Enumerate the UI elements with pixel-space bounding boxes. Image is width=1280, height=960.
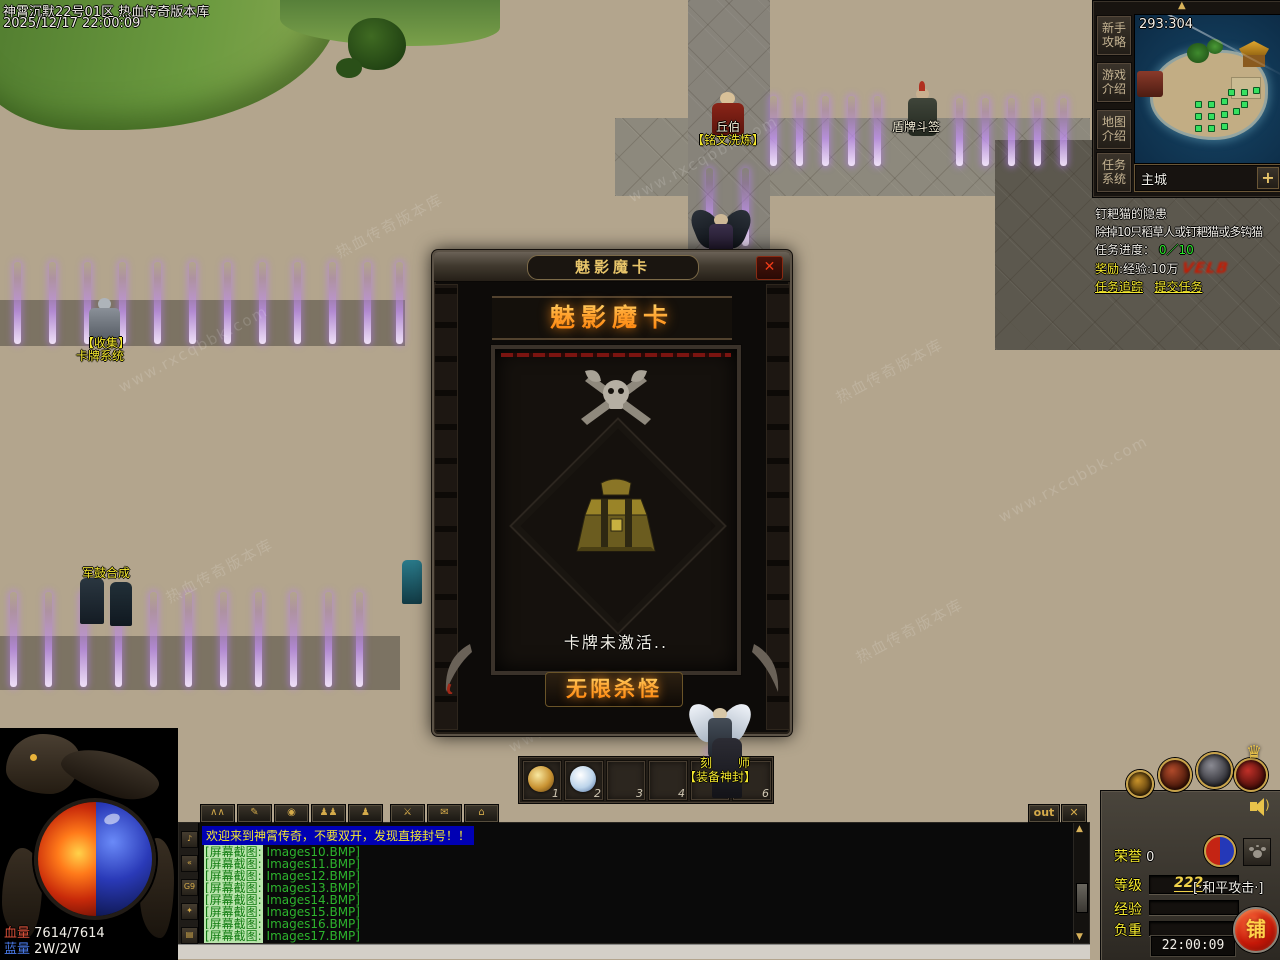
minimap-player-dot xyxy=(1233,108,1240,115)
honor-value: 0 xyxy=(1146,850,1154,865)
watermark-text: 热血传奇版本库 xyxy=(332,188,447,262)
quest-track-link[interactable]: 任务追踪 xyxy=(1095,280,1143,294)
chat-input[interactable] xyxy=(178,944,1090,959)
chest-icon xyxy=(571,477,661,561)
quest-submit-link[interactable]: 提交任务 xyxy=(1154,280,1202,294)
weight-label: 负重 xyxy=(1114,920,1142,940)
minimap[interactable]: 293:304 xyxy=(1134,14,1280,164)
card-status-text: 卡牌未激活.. xyxy=(495,629,737,653)
quest-title: 钉耙猫的隐患 xyxy=(1095,205,1280,223)
minimap-player-dot xyxy=(1195,101,1202,108)
scroll-item-icon xyxy=(528,766,554,792)
exp-label: 经验 xyxy=(1114,899,1142,919)
dialog-header-text: 魅影魔卡 xyxy=(550,303,674,332)
menu-character-icon[interactable] xyxy=(1158,758,1192,792)
quest-reward-label: 奖励 xyxy=(1095,262,1119,276)
watermark-text: www.rxcqbbk.com xyxy=(996,432,1152,526)
minimap-location-bar: 主城 + xyxy=(1134,164,1280,192)
duel-icon[interactable]: ⚔ xyxy=(390,804,425,823)
magic-card: 卡牌未激活.. xyxy=(491,345,741,675)
exp-bar xyxy=(1149,900,1239,915)
minimap-player-dot xyxy=(1208,113,1215,120)
watermark-text: 热血传奇版本库 xyxy=(832,333,947,407)
blade-decoration-left xyxy=(440,644,474,694)
scroll-down-icon[interactable]: ▼ xyxy=(1076,932,1083,942)
guild-icon[interactable]: ♟ xyxy=(348,804,383,823)
hp-mp-orb xyxy=(34,798,156,920)
pillar-base-row-2 xyxy=(0,636,400,690)
chat-out-button[interactable]: out xyxy=(1028,804,1060,823)
npc-drum-sprite-1[interactable] xyxy=(80,578,104,624)
location-name: 主城 xyxy=(1141,169,1167,188)
minimize-chat-icon[interactable]: ∧∧ xyxy=(200,804,235,823)
chat-line: [屏幕截图: Images17.BMP] xyxy=(204,927,360,944)
slot-number: 6 xyxy=(762,787,769,800)
npc-shield-name: 盾牌斗签 xyxy=(892,118,940,135)
npc-collect-name: 卡牌系统 xyxy=(76,347,124,364)
screenshot-file: Images17.BMP] xyxy=(263,929,360,943)
quest-tracker: 钉耙猫的隐患 除掉10只稻草人或钉耙猫或多钩猫 任务进度： 0／10 奖励:经验… xyxy=(1095,205,1280,296)
npc-seal-line2: 【装备神封】 xyxy=(684,768,756,785)
infinite-kill-button[interactable]: 无限杀怪 xyxy=(545,672,683,707)
minimap-player-dot xyxy=(1241,101,1248,108)
quest-progress-value: 0／10 xyxy=(1159,243,1194,257)
slot-number: 2 xyxy=(594,787,601,800)
dragon-eye xyxy=(30,754,37,761)
dialog-title: 魅影魔卡 xyxy=(527,255,699,280)
level-label: 等级 xyxy=(1114,875,1142,895)
speaker-icon[interactable]: ) xyxy=(1248,796,1274,818)
server-datetime: 2025/12/17 22:00:09 xyxy=(3,16,140,31)
dialog-titlebar: 魅影魔卡 ✕ xyxy=(434,252,790,282)
minimap-player-dot xyxy=(1221,123,1228,130)
trophy-icon[interactable]: ♛ xyxy=(1246,742,1270,766)
minimap-tree-1 xyxy=(1187,43,1209,63)
scroll-up-icon[interactable]: ▲ xyxy=(1076,824,1083,834)
weight-bar xyxy=(1149,921,1239,936)
stall-button[interactable]: 铺 xyxy=(1233,907,1279,953)
bush-small xyxy=(336,58,362,78)
phantom-card-dialog: 魅影魔卡 ✕ 魅影魔卡 xyxy=(432,250,792,736)
minimap-player-dot xyxy=(1241,89,1248,96)
orb-item-icon xyxy=(570,766,596,792)
minimap-collapse-icon[interactable]: ▲ xyxy=(1178,0,1186,11)
chat-filter-icon[interactable]: « xyxy=(181,855,198,872)
npc-qiubo-title: 【铭文洗炼】 xyxy=(692,131,764,148)
pillar-base-row-1 xyxy=(0,300,405,346)
home-icon[interactable]: ⌂ xyxy=(464,804,499,823)
whisper-icon[interactable]: ✎ xyxy=(237,804,272,823)
watermark-text: 热血传奇版本库 xyxy=(852,593,967,667)
minimap-zoom-button[interactable]: + xyxy=(1257,167,1279,189)
pet-paw-icon[interactable] xyxy=(1243,838,1271,866)
screenshot-tag: [屏幕截图: xyxy=(204,929,263,943)
hp-orb-panel: 血量 7614/7614 蓝量 2W/2W xyxy=(0,728,178,960)
npc-drum-name: 军鼓合成 xyxy=(82,564,130,581)
minimap-player-dot xyxy=(1228,89,1235,96)
hp-orb-half xyxy=(38,802,96,916)
view-icon[interactable]: ◉ xyxy=(274,804,309,823)
chat-close-icon[interactable]: ✕ xyxy=(1061,804,1087,823)
minimap-player-dot xyxy=(1195,113,1202,120)
quest-progress-label: 任务进度： xyxy=(1095,243,1155,257)
minimap-player-dot xyxy=(1221,111,1228,118)
minimap-player-dot xyxy=(1253,87,1260,94)
scroll-thumb[interactable] xyxy=(1076,883,1088,913)
honor-label: 荣誉 xyxy=(1114,849,1142,865)
minimap-player-dot xyxy=(1221,98,1228,105)
quickbar-slot-2[interactable]: 2 xyxy=(564,760,604,801)
nav-task-system-button[interactable]: 任务 系统 xyxy=(1096,152,1132,193)
nav-map-intro-button[interactable]: 地图 介绍 xyxy=(1096,109,1132,150)
nav-newbie-guide-button[interactable]: 新手 攻略 xyxy=(1096,15,1132,56)
card-red-trim xyxy=(501,353,731,357)
blade-decoration-right xyxy=(750,644,784,694)
mp-value: 2W/2W xyxy=(34,942,81,957)
quickbar-slot-1[interactable]: 1 xyxy=(522,760,562,801)
quickbar-slot-4[interactable]: 4 xyxy=(648,760,688,801)
chat-channel-icon[interactable]: G9 xyxy=(181,879,198,896)
chat-scrollbar[interactable]: ▲ ▼ xyxy=(1073,823,1089,943)
infinite-kill-label: 无限杀怪 xyxy=(566,677,662,701)
menu-skill-icon[interactable] xyxy=(1196,752,1233,789)
close-icon[interactable]: ✕ xyxy=(756,256,783,280)
slot-number: 1 xyxy=(552,787,559,800)
quest-reward-text: :经验:10万 xyxy=(1119,262,1178,276)
chat-panel: ♪ « G9 ✦ ▤ 欢迎来到神霄传奇，不要双开，发现直接封号！！ [屏幕截图:… xyxy=(178,822,1090,944)
quickbar-slot-3[interactable]: 3 xyxy=(606,760,646,801)
dialog-header-plaque: 魅影魔卡 xyxy=(492,296,732,340)
minimap-coords: 293:304 xyxy=(1139,17,1193,32)
chat-voice-icon[interactable]: ♪ xyxy=(181,831,198,848)
attack-mode[interactable]: [·和平攻击·] xyxy=(1193,877,1263,896)
nav-game-intro-button[interactable]: 游戏 介绍 xyxy=(1096,62,1132,103)
chat-side-strip: ♪ « G9 ✦ ▤ xyxy=(179,823,199,943)
minimap-player-dot xyxy=(1195,125,1202,132)
pk-mode-orb-icon[interactable] xyxy=(1204,835,1236,867)
quest-reward-stamp: VELB xyxy=(1181,259,1230,277)
npc-drum-sprite-2[interactable] xyxy=(110,582,132,626)
game-clock: 22:00:09 xyxy=(1151,936,1235,956)
minimap-panel: ▲ 新手 攻略 游戏 介绍 地图 介绍 任务 系统 293:304 主城 + xyxy=(1092,0,1280,198)
npc-teal-sprite[interactable] xyxy=(402,560,422,604)
watermark-text: 热血传奇版本库 xyxy=(162,533,277,607)
slot-number: 3 xyxy=(636,787,643,800)
skull-axes-icon xyxy=(571,367,661,429)
chat-emote-icon[interactable]: ✦ xyxy=(181,903,198,920)
slot-number: 4 xyxy=(678,787,685,800)
game-viewport: www.rxcqbbk.com热血传奇版本库www.rxcqbbk.com热血传… xyxy=(0,0,1280,960)
mp-label: 蓝量 xyxy=(4,942,30,957)
quest-desc: 除掉10只稻草人或钉耙猫或多钩猫 xyxy=(1095,223,1280,241)
minimap-player-dot xyxy=(1208,101,1215,108)
chat-bubble-icon[interactable]: ✉ xyxy=(427,804,462,823)
team-icon[interactable]: ♟♟ xyxy=(311,804,346,823)
menu-bag-icon[interactable] xyxy=(1126,770,1154,798)
minimap-player-dot xyxy=(1208,125,1215,132)
minimap-red-building xyxy=(1137,71,1163,97)
chat-log-icon[interactable]: ▤ xyxy=(181,927,198,944)
